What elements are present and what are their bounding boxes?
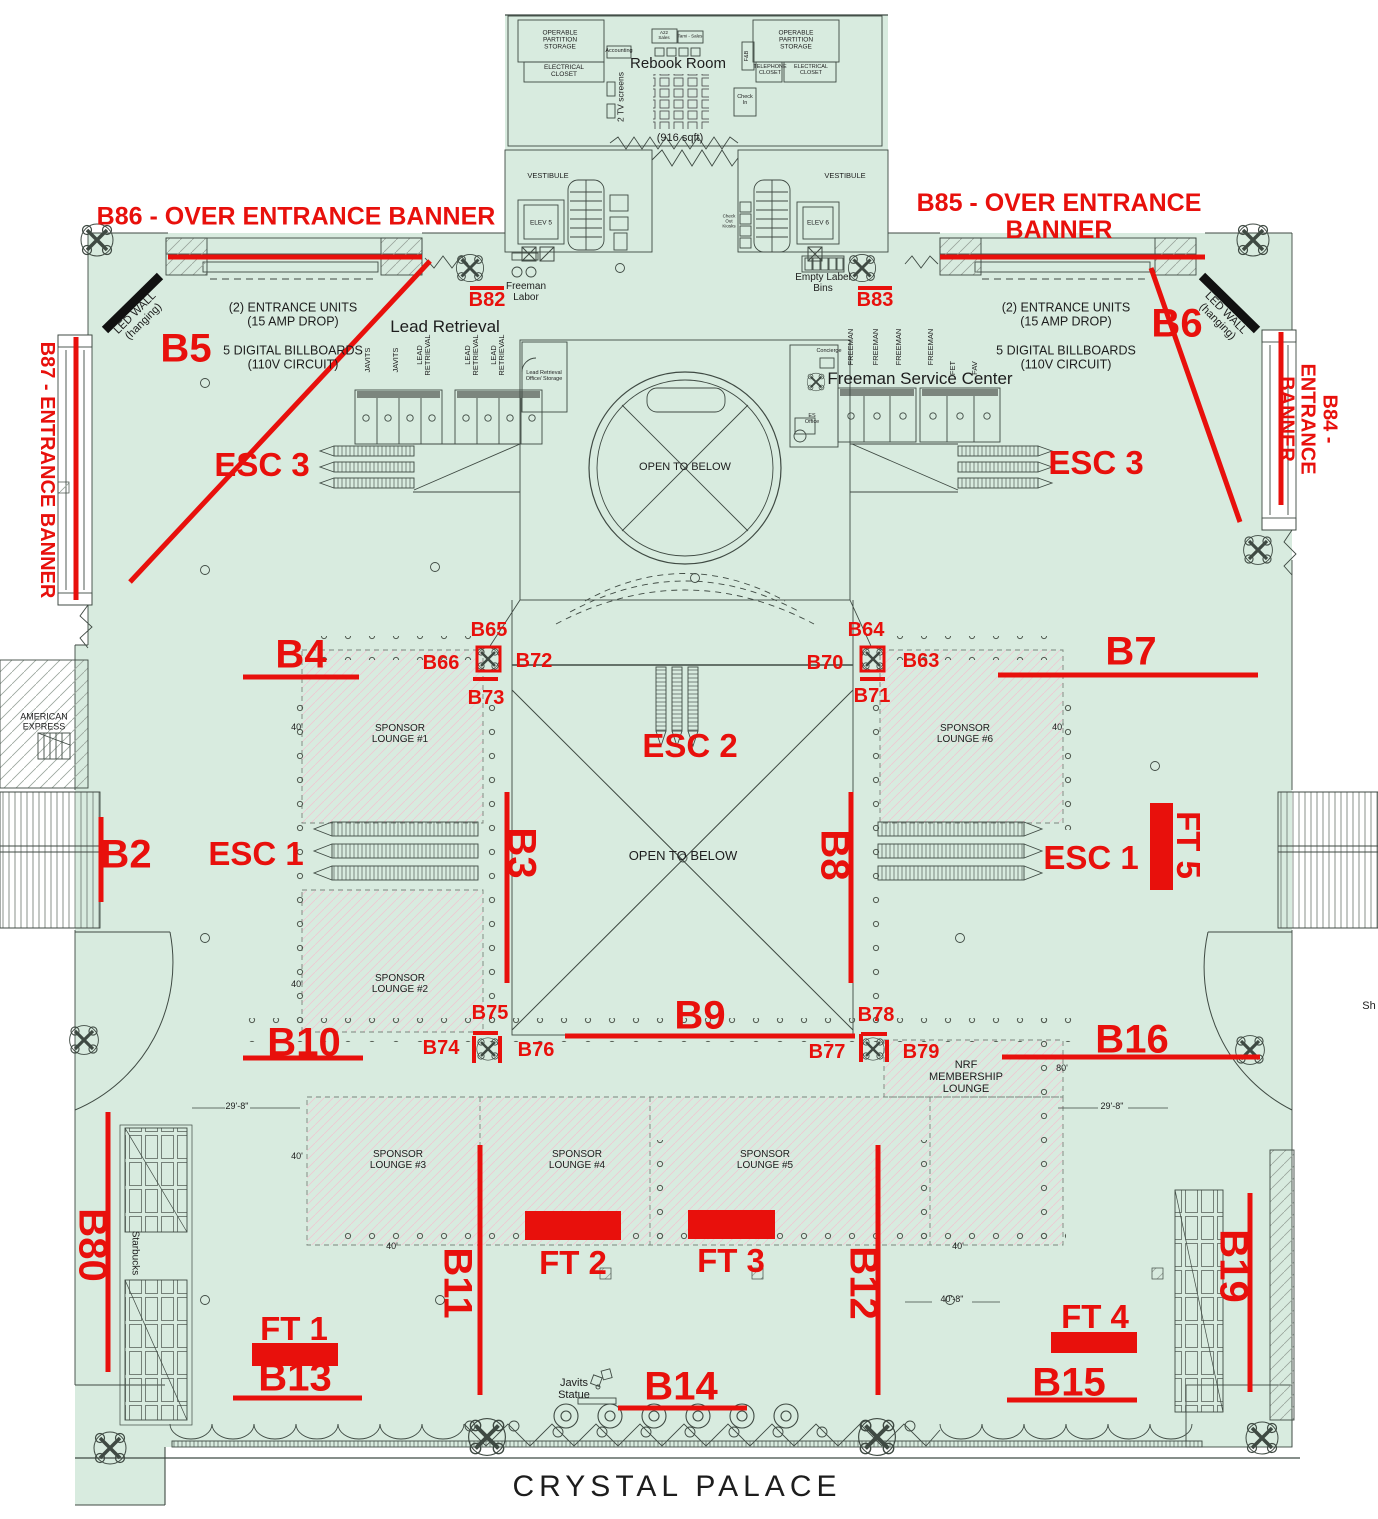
floor-plan-drawing	[0, 0, 1378, 1519]
floor-plan: B86 - OVER ENTRANCE BANNER B85 - OVER EN…	[0, 0, 1378, 1519]
floor-plate	[75, 15, 1292, 1505]
